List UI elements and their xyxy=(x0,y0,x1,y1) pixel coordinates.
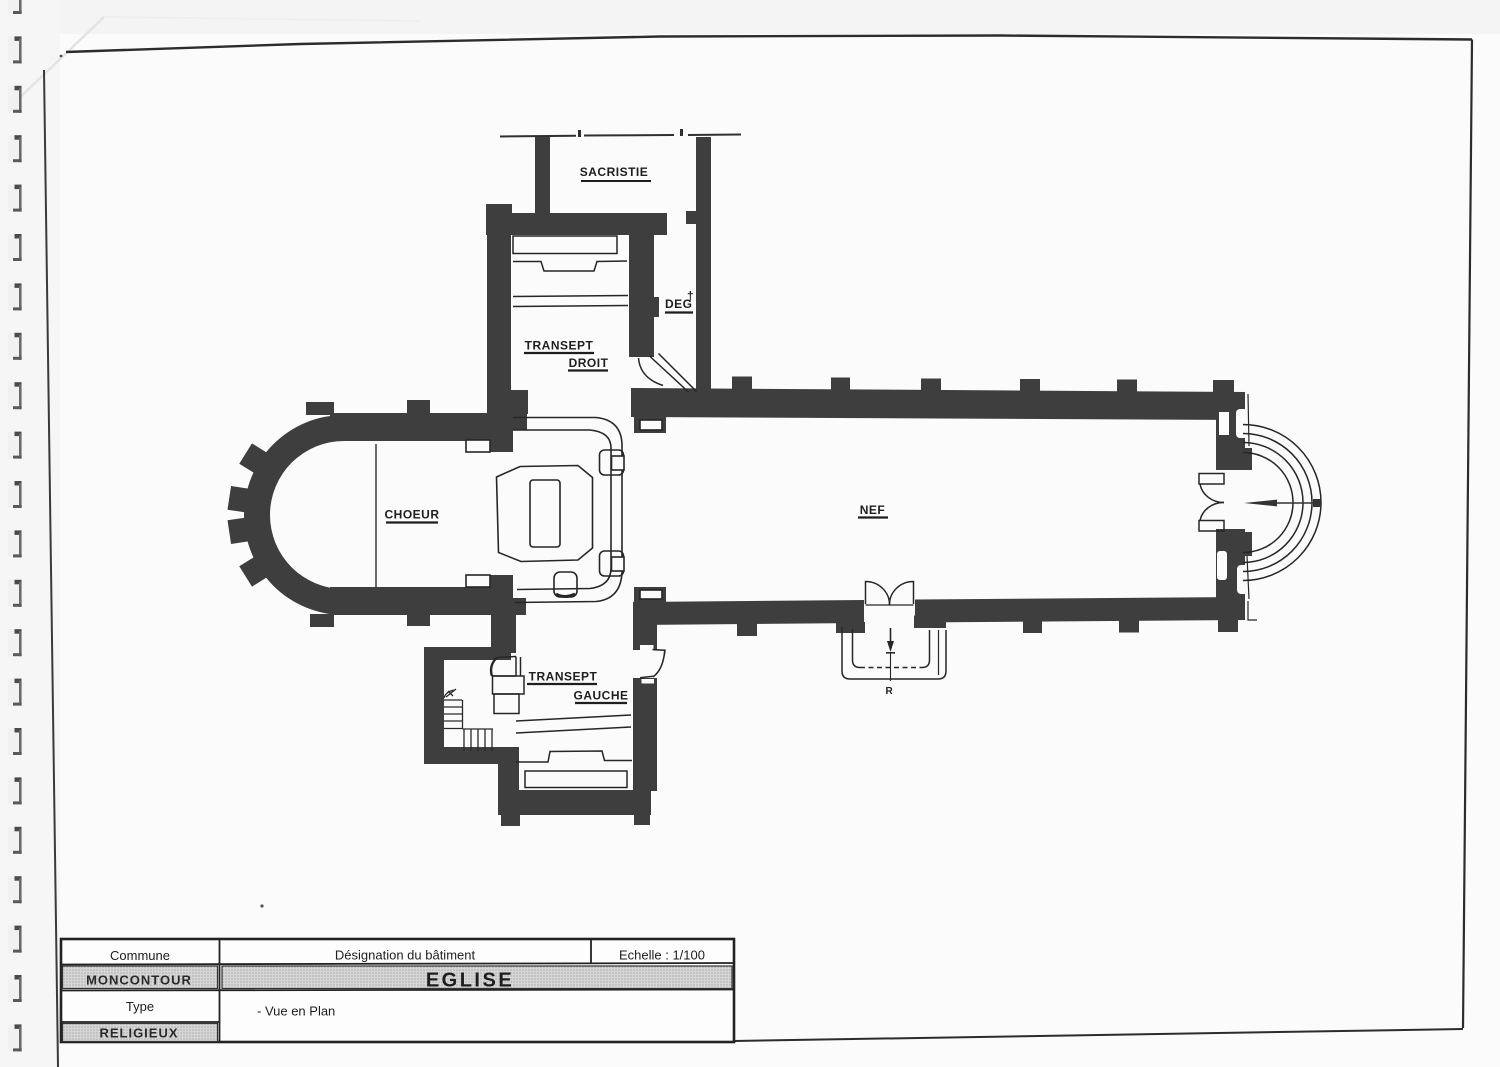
svg-text:TRANSEPT: TRANSEPT xyxy=(529,670,598,684)
svg-text:NEF: NEF xyxy=(860,503,886,517)
svg-text:Désignation du bâtiment: Désignation du bâtiment xyxy=(335,948,476,963)
svg-text:R: R xyxy=(886,686,894,697)
svg-text:MONCONTOUR: MONCONTOUR xyxy=(86,973,192,988)
svg-text:TRANSEPT: TRANSEPT xyxy=(525,339,594,353)
svg-text:†: † xyxy=(687,289,694,303)
svg-text:CHOEUR: CHOEUR xyxy=(384,508,439,522)
svg-text:RELIGIEUX: RELIGIEUX xyxy=(99,1026,178,1041)
svg-text:Type: Type xyxy=(126,999,154,1014)
svg-text:Echelle : 1/100: Echelle : 1/100 xyxy=(619,948,705,963)
svg-text:SACRISTIE: SACRISTIE xyxy=(580,165,649,179)
svg-text:GAUCHE: GAUCHE xyxy=(573,689,628,703)
svg-text:- Vue en Plan: - Vue en Plan xyxy=(257,1004,335,1019)
svg-text:EGLISE: EGLISE xyxy=(426,970,514,992)
svg-text:DROIT: DROIT xyxy=(569,356,609,370)
svg-text:Commune: Commune xyxy=(110,948,170,963)
